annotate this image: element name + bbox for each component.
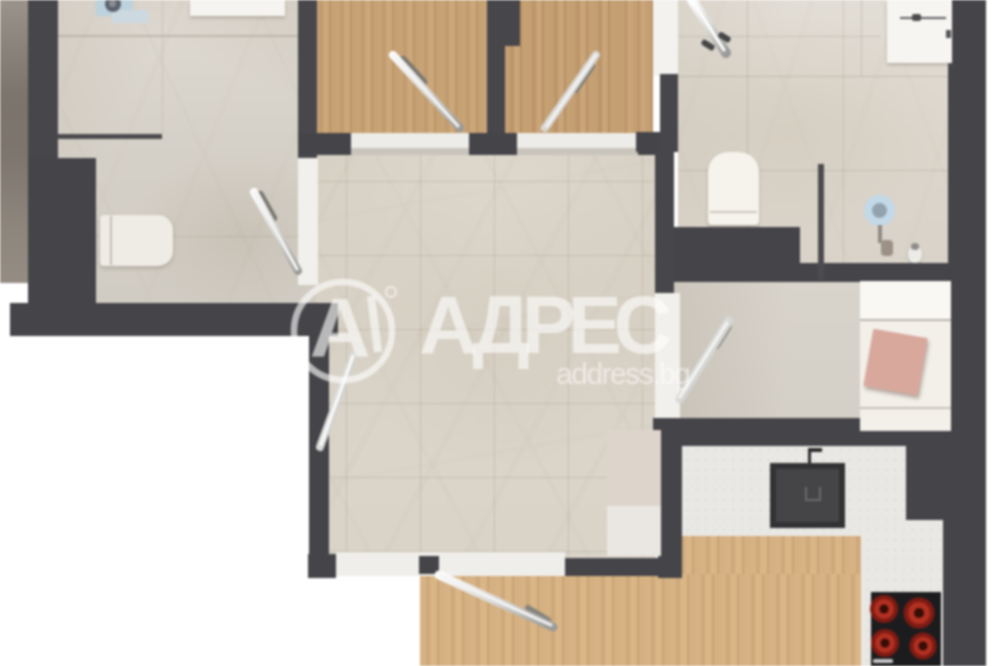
svg-text:А: А: [310, 281, 371, 375]
svg-text:address.bg: address.bg: [556, 357, 691, 390]
